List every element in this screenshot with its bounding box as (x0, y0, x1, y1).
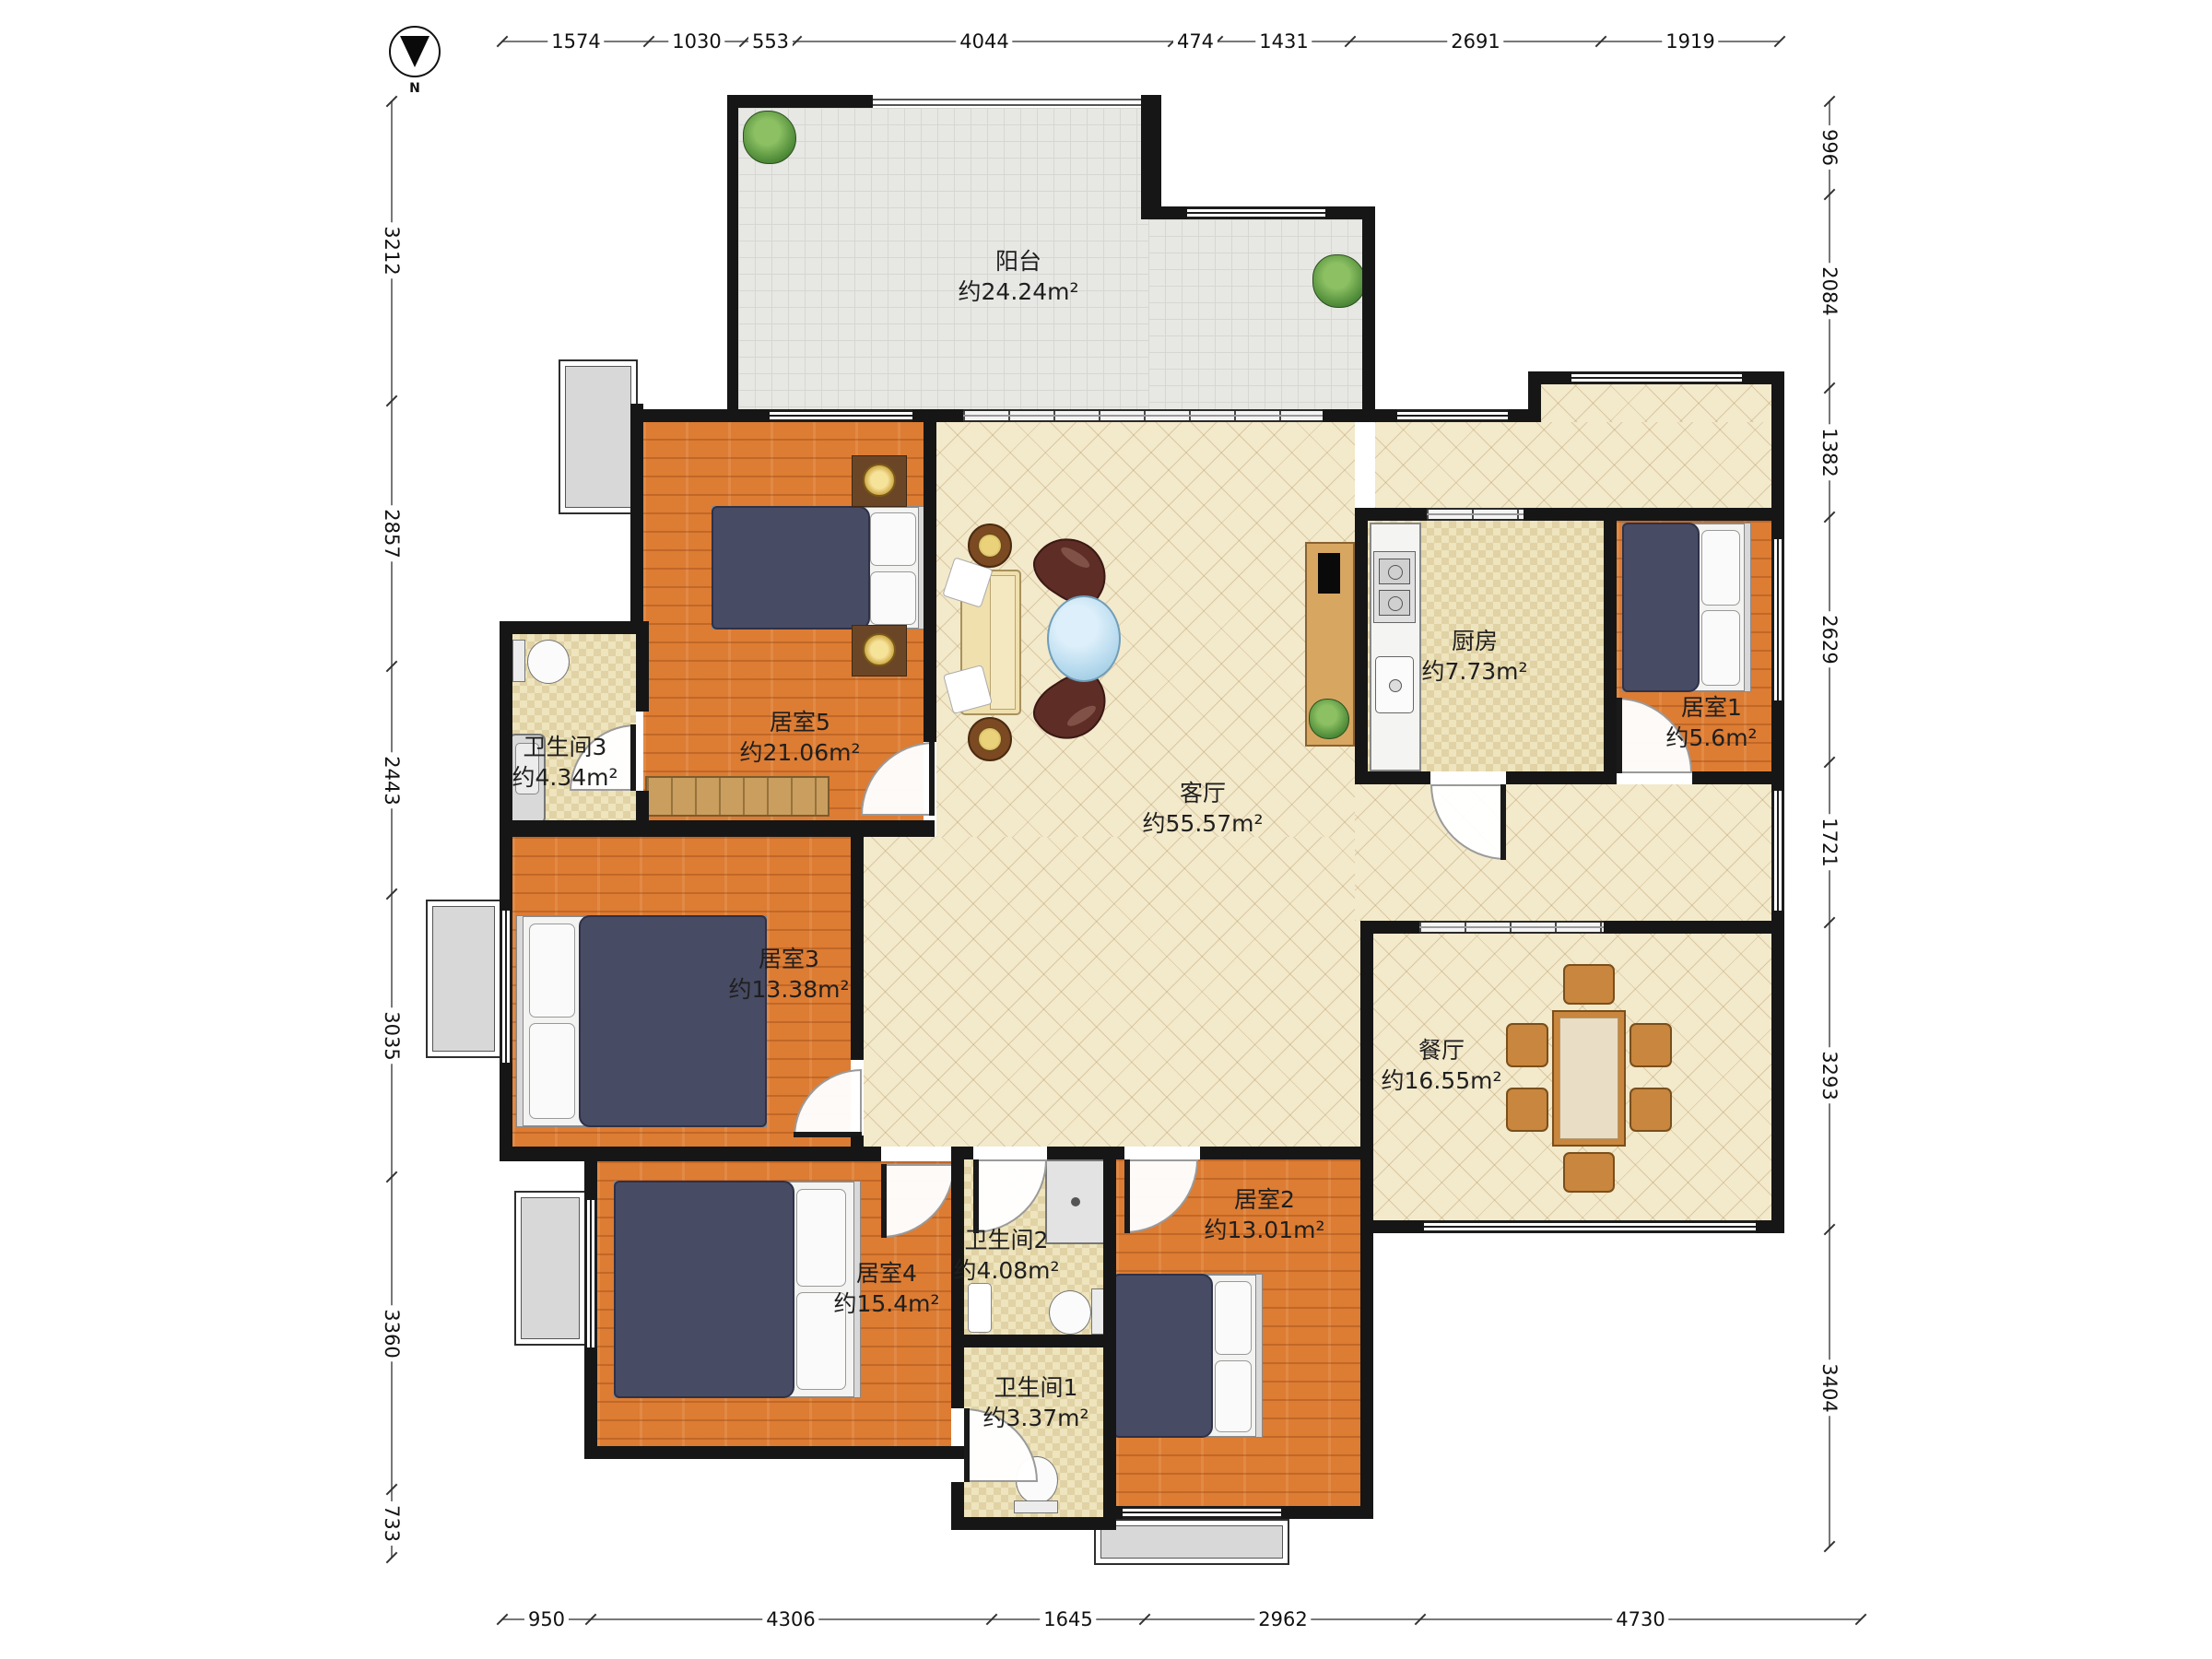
pillow (1701, 530, 1740, 606)
lamp-icon (978, 727, 1002, 751)
pillow (1215, 1360, 1252, 1432)
floor-entry (1541, 384, 1771, 422)
burner-icon (1379, 559, 1410, 584)
room-label-bedroom2: 居室2 约13.01m² (1205, 1184, 1325, 1245)
dim-value: 2629 (1818, 611, 1841, 667)
sliding-door (1427, 508, 1524, 521)
wall (636, 621, 649, 712)
wall (630, 404, 643, 634)
wall (1047, 1147, 1103, 1159)
burner-icon (1379, 590, 1410, 616)
wall (964, 1147, 973, 1159)
dim-value: 3212 (381, 222, 403, 278)
pillow (529, 924, 575, 1018)
wall (1200, 1147, 1360, 1159)
ac-platform-fill (565, 366, 631, 508)
dim-value: 4730 (1612, 1608, 1668, 1630)
wall (1362, 206, 1375, 422)
window (1397, 409, 1508, 422)
dim-value: 2962 (1254, 1608, 1311, 1630)
room-label-dining: 餐厅 约16.55m² (1382, 1035, 1502, 1096)
bathroom-sink (968, 1283, 992, 1333)
room-name: 居室2 (1205, 1184, 1325, 1215)
door-leaf (1124, 1159, 1130, 1233)
room-name: 卫生间2 (953, 1225, 1059, 1255)
wall (951, 1482, 964, 1530)
wall (500, 820, 935, 837)
balcony-railing (873, 99, 1141, 106)
bay-fill (521, 1197, 580, 1339)
room-label-bathroom2: 卫生间2 约4.08m² (953, 1225, 1059, 1286)
plant (1309, 699, 1349, 739)
room-name: 居室4 (833, 1258, 939, 1288)
dim-value: 1919 (1662, 30, 1718, 53)
wall (1692, 771, 1784, 784)
wall (1362, 508, 1784, 521)
dim-value: 1721 (1818, 814, 1841, 870)
room-area: 约21.06m² (740, 737, 861, 768)
room-area: 约5.6m² (1665, 723, 1757, 753)
toilet (527, 640, 570, 684)
dim-value: 3404 (1818, 1359, 1841, 1416)
door-leaf (964, 1408, 970, 1482)
window (770, 409, 912, 422)
wall (851, 1135, 864, 1147)
wall (1116, 1147, 1124, 1159)
wall (1355, 771, 1430, 784)
room-area: 约4.34m² (512, 762, 618, 793)
nightstand-lamp (852, 625, 907, 677)
room-label-bedroom1: 居室1 约5.6m² (1665, 692, 1757, 753)
wall (727, 95, 738, 420)
dim-value: 2084 (1818, 263, 1841, 319)
dining-chair (1563, 1152, 1615, 1193)
room-name: 居室3 (729, 944, 850, 974)
room-label-bedroom3: 居室3 约13.38m² (729, 944, 850, 1005)
wall (1604, 921, 1784, 934)
plant (743, 111, 796, 164)
room-area: 约24.24m² (959, 276, 1079, 307)
compass-n-label: N (409, 81, 420, 96)
wall (1103, 1147, 1116, 1530)
dim-value: 3293 (1818, 1047, 1841, 1103)
side-table-lamp (968, 524, 1012, 568)
pillow (1215, 1281, 1252, 1355)
room-area: 约13.38m² (729, 974, 850, 1005)
door-leaf (881, 1164, 887, 1238)
wall (500, 621, 647, 634)
wall (951, 1147, 964, 1161)
window (1187, 206, 1325, 219)
window (584, 1200, 597, 1347)
room-label-bedroom4: 居室4 约15.4m² (833, 1258, 939, 1319)
coffee-table (1047, 595, 1121, 682)
dim-value: 474 (1173, 30, 1218, 53)
floor-plan: 阳台 约24.24m² 居室5 约21.06m² 卫生间3 约4.34m² 居室… (0, 0, 2212, 1659)
room-area: 约16.55m² (1382, 1065, 1502, 1096)
pillow (1701, 610, 1740, 686)
window (500, 911, 512, 1063)
sliding-door (1419, 921, 1604, 934)
floor-entry (1375, 422, 1771, 508)
wall (1355, 508, 1368, 784)
bay-window-bedroom3 (426, 900, 501, 1058)
door-leaf (1500, 784, 1506, 860)
dim-value: 553 (748, 30, 793, 53)
dim-value: 3360 (381, 1305, 403, 1361)
bay-fill (432, 906, 495, 1052)
pillow (870, 571, 916, 625)
dim-value: 4306 (762, 1608, 818, 1630)
wall (636, 791, 649, 820)
toilet-tank (1014, 1500, 1058, 1513)
floor-hallway (864, 837, 1362, 1147)
wall (951, 1517, 1116, 1530)
room-label-bathroom3: 卫生间3 约4.34m² (512, 732, 618, 793)
wall (584, 1446, 964, 1459)
room-area: 约13.01m² (1205, 1215, 1325, 1245)
dim-value: 950 (524, 1608, 569, 1630)
dining-chair (1630, 1023, 1672, 1067)
wall (1604, 521, 1617, 784)
toilet (1049, 1290, 1091, 1335)
room-label-bedroom5: 居室5 约21.06m² (740, 707, 861, 768)
room-name: 居室5 (740, 707, 861, 737)
dining-chair (1630, 1088, 1672, 1132)
bed-headboard (516, 915, 524, 1127)
toilet-tank (512, 640, 525, 682)
wall (1362, 921, 1419, 934)
dim-value: 996 (1818, 125, 1841, 170)
room-name: 厨房 (1421, 626, 1527, 656)
bed-duvet (712, 506, 870, 629)
door-leaf (1617, 698, 1622, 773)
door-leaf (630, 724, 636, 791)
wardrobe (645, 776, 829, 817)
dim-value: 3035 (381, 1007, 403, 1064)
bay-window-bedroom4 (514, 1191, 586, 1346)
room-name: 阳台 (959, 246, 1079, 276)
sliding-door (963, 409, 1323, 422)
room-area: 约15.4m² (833, 1288, 939, 1319)
floor-passage (1355, 784, 1771, 921)
pillow (870, 512, 916, 566)
window (1571, 371, 1742, 384)
lamp-icon (863, 464, 896, 497)
room-name: 卫生间3 (512, 732, 618, 762)
dim-value: 1645 (1040, 1608, 1096, 1630)
room-name: 卫生间1 (982, 1372, 1088, 1403)
floor-balcony (738, 108, 1148, 415)
room-name: 居室1 (1665, 692, 1757, 723)
door-leaf (929, 742, 935, 816)
bed-duvet (1622, 523, 1700, 692)
bed-headboard (1744, 523, 1751, 692)
bed-duvet (1113, 1274, 1213, 1438)
dim-value: 1382 (1818, 424, 1841, 480)
north-compass (389, 26, 441, 77)
dim-value: 1431 (1255, 30, 1312, 53)
room-label-kitchen: 厨房 约7.73m² (1421, 626, 1527, 687)
dim-value: 2857 (381, 505, 403, 561)
wall (1506, 771, 1617, 784)
wall (500, 1147, 881, 1161)
room-label-balcony: 阳台 约24.24m² (959, 246, 1079, 307)
pillow (529, 1023, 575, 1119)
room-label-bathroom1: 卫生间1 约3.37m² (982, 1372, 1088, 1433)
bay-fill (1100, 1525, 1283, 1559)
bay-window-bedroom2 (1094, 1519, 1289, 1565)
dim-value: 2691 (1447, 30, 1503, 53)
room-area: 约7.73m² (1421, 656, 1527, 687)
wall (964, 1335, 1103, 1347)
dining-table-top (1559, 1018, 1618, 1139)
dim-value: 733 (381, 1501, 403, 1546)
room-area: 约55.57m² (1143, 808, 1264, 839)
dining-chair (1563, 964, 1615, 1005)
wall (500, 621, 512, 1159)
bed-headboard (1255, 1274, 1263, 1438)
toilet-tank (1091, 1288, 1104, 1335)
nightstand-lamp (852, 455, 907, 507)
room-area: 约4.08m² (953, 1255, 1059, 1286)
window (1424, 1220, 1756, 1233)
window (1123, 1506, 1281, 1519)
dining-chair (1506, 1023, 1548, 1067)
window (1771, 539, 1784, 700)
room-name: 客厅 (1143, 778, 1264, 808)
wall (924, 409, 936, 742)
side-table-lamp (968, 717, 1012, 761)
wall (1360, 921, 1373, 1517)
dim-value: 2443 (381, 752, 403, 808)
tv-icon (1318, 553, 1340, 594)
ac-platform (559, 359, 638, 514)
north-arrow-icon (400, 36, 429, 67)
floor-balcony (1148, 219, 1362, 415)
door-leaf (973, 1159, 979, 1233)
bed-duvet (614, 1181, 794, 1398)
lamp-icon (863, 633, 896, 666)
wall (727, 95, 873, 108)
room-label-living: 客厅 约55.57m² (1143, 778, 1264, 839)
dining-chair (1506, 1088, 1548, 1132)
window (1771, 791, 1784, 911)
kitchen-sink (1375, 656, 1414, 713)
dim-value: 1574 (547, 30, 604, 53)
dim-value: 4044 (956, 30, 1012, 53)
wall (851, 837, 864, 1060)
lamp-icon (978, 534, 1002, 558)
room-area: 约3.37m² (982, 1403, 1088, 1433)
wall (1141, 95, 1161, 219)
dim-value: 1030 (668, 30, 724, 53)
plant (1312, 254, 1366, 308)
room-name: 餐厅 (1382, 1035, 1502, 1065)
